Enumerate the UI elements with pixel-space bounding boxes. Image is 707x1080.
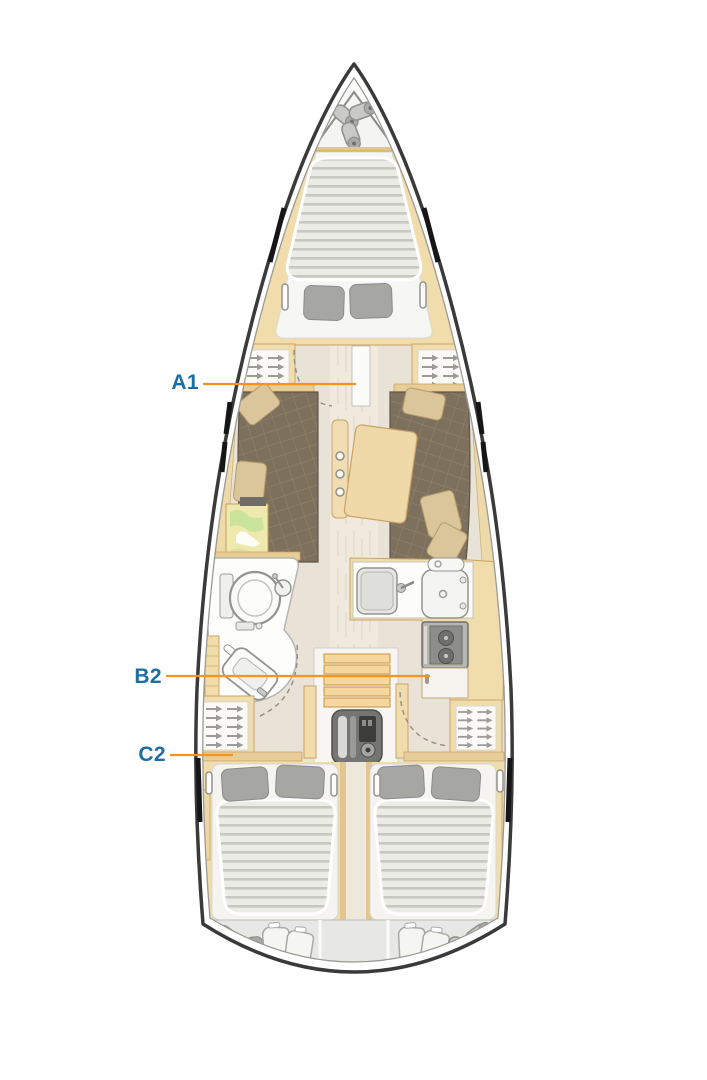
fender-icon: [220, 944, 246, 975]
pillow: [431, 766, 481, 801]
aft-cabin-starboard-bed: [370, 764, 496, 920]
window-icon: [483, 442, 486, 472]
label-c2: C2: [138, 743, 166, 766]
interior: [185, 60, 525, 990]
pillow: [349, 283, 392, 318]
aft-cabins: [194, 762, 514, 922]
aft-bulkhead: [404, 752, 504, 761]
aft-bulkhead: [198, 752, 302, 761]
door-jamb: [352, 346, 370, 406]
handle-icon: [331, 774, 337, 796]
wardrobe-aft-port: [196, 696, 254, 756]
corridor-wall: [304, 686, 316, 758]
handle-icon: [206, 772, 212, 794]
handle-icon: [420, 282, 426, 308]
handle-icon: [497, 770, 503, 792]
stove-icon: [422, 622, 468, 668]
label-a1: A1: [171, 371, 199, 394]
yacht-interior-plan: A1 B2 C2: [0, 0, 707, 1080]
handle-icon: [374, 774, 380, 796]
vberth-mattress: [287, 158, 421, 280]
aft-cabin-port-bed: [212, 764, 338, 920]
window-icon: [222, 442, 225, 472]
pillow: [275, 765, 325, 799]
stern-lockers: [198, 920, 510, 990]
fridge-icon: [422, 668, 468, 698]
pillow: [377, 765, 425, 799]
window-icon: [198, 758, 200, 822]
fender-icon: [463, 942, 489, 973]
engine: [332, 710, 382, 764]
companionway-steps: [324, 654, 390, 707]
handle-icon: [282, 284, 288, 310]
yacht-layout-page: A1 B2 C2: [0, 0, 707, 1080]
pillow: [303, 285, 344, 320]
wardrobe-aft-starboard: [450, 700, 502, 756]
dining-table: [332, 420, 418, 524]
corridor-wall: [396, 684, 408, 758]
pillow: [221, 766, 269, 801]
second-sink-icon: [422, 558, 468, 618]
label-b2: B2: [134, 665, 162, 688]
window-icon: [508, 758, 510, 822]
